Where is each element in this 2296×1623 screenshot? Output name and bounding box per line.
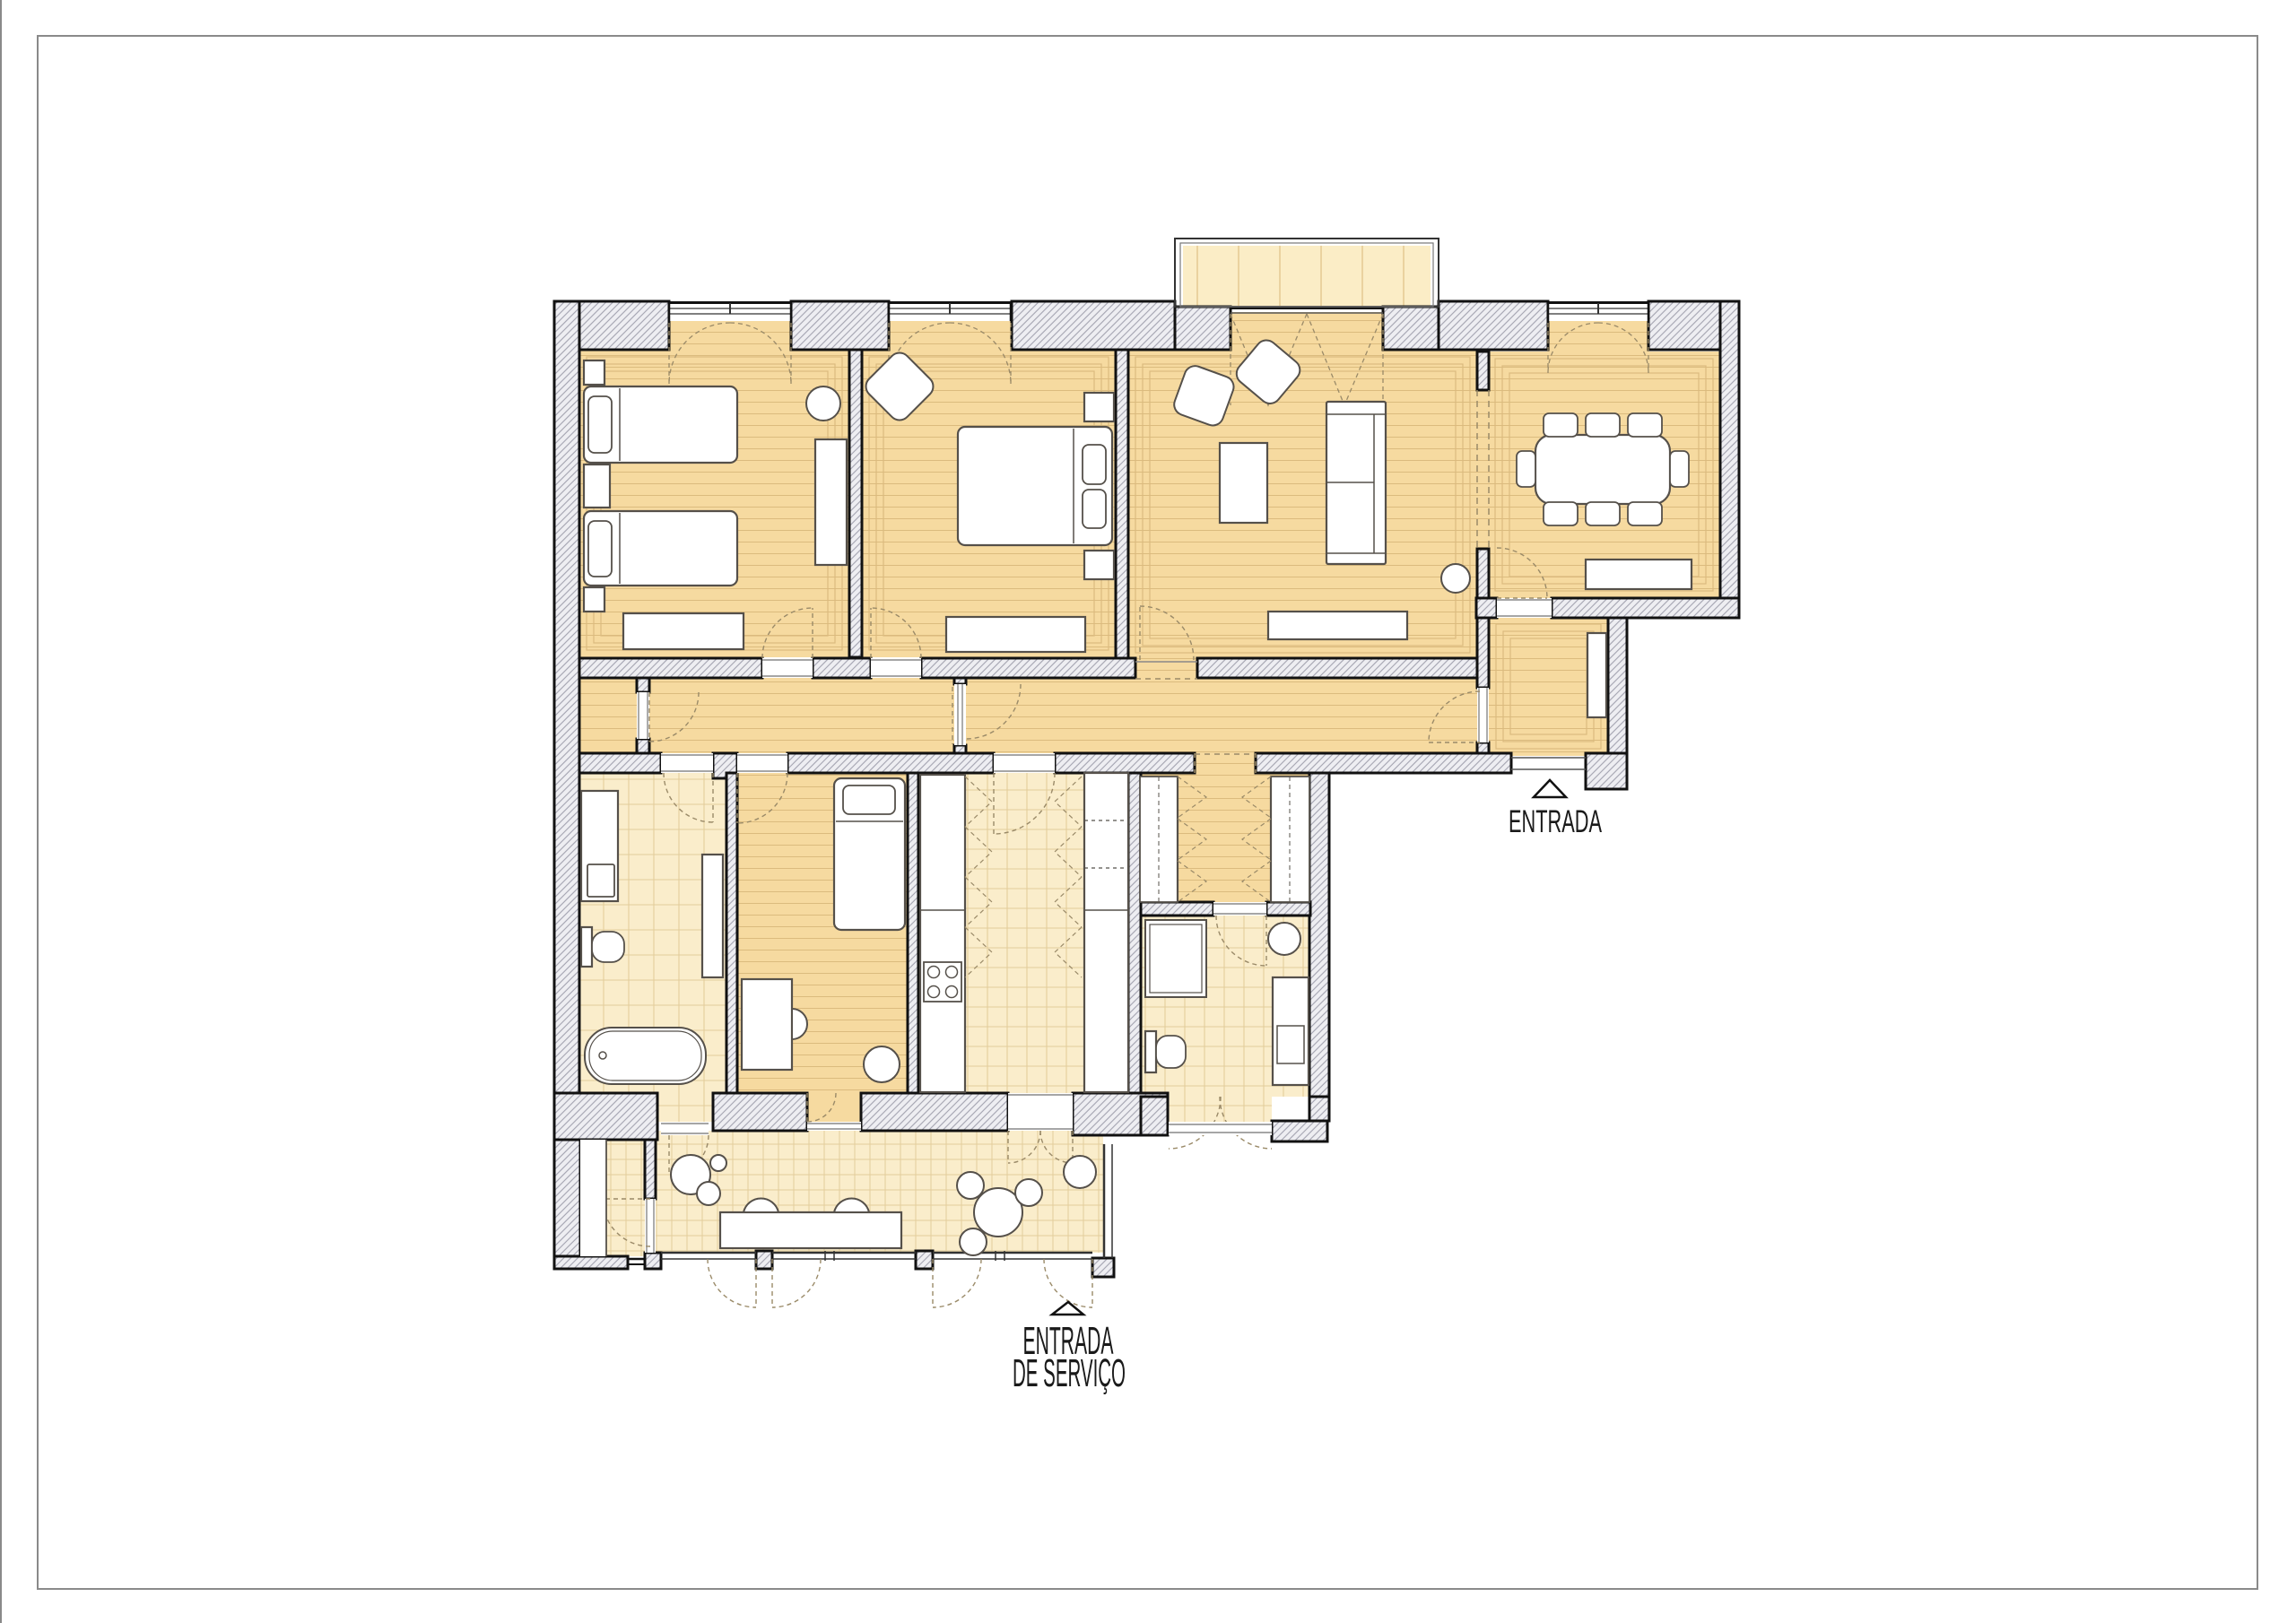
- svg-text:DE SERVIÇO: DE SERVIÇO: [1013, 1351, 1126, 1395]
- svg-text:ENTRADA: ENTRADA: [1509, 804, 1602, 839]
